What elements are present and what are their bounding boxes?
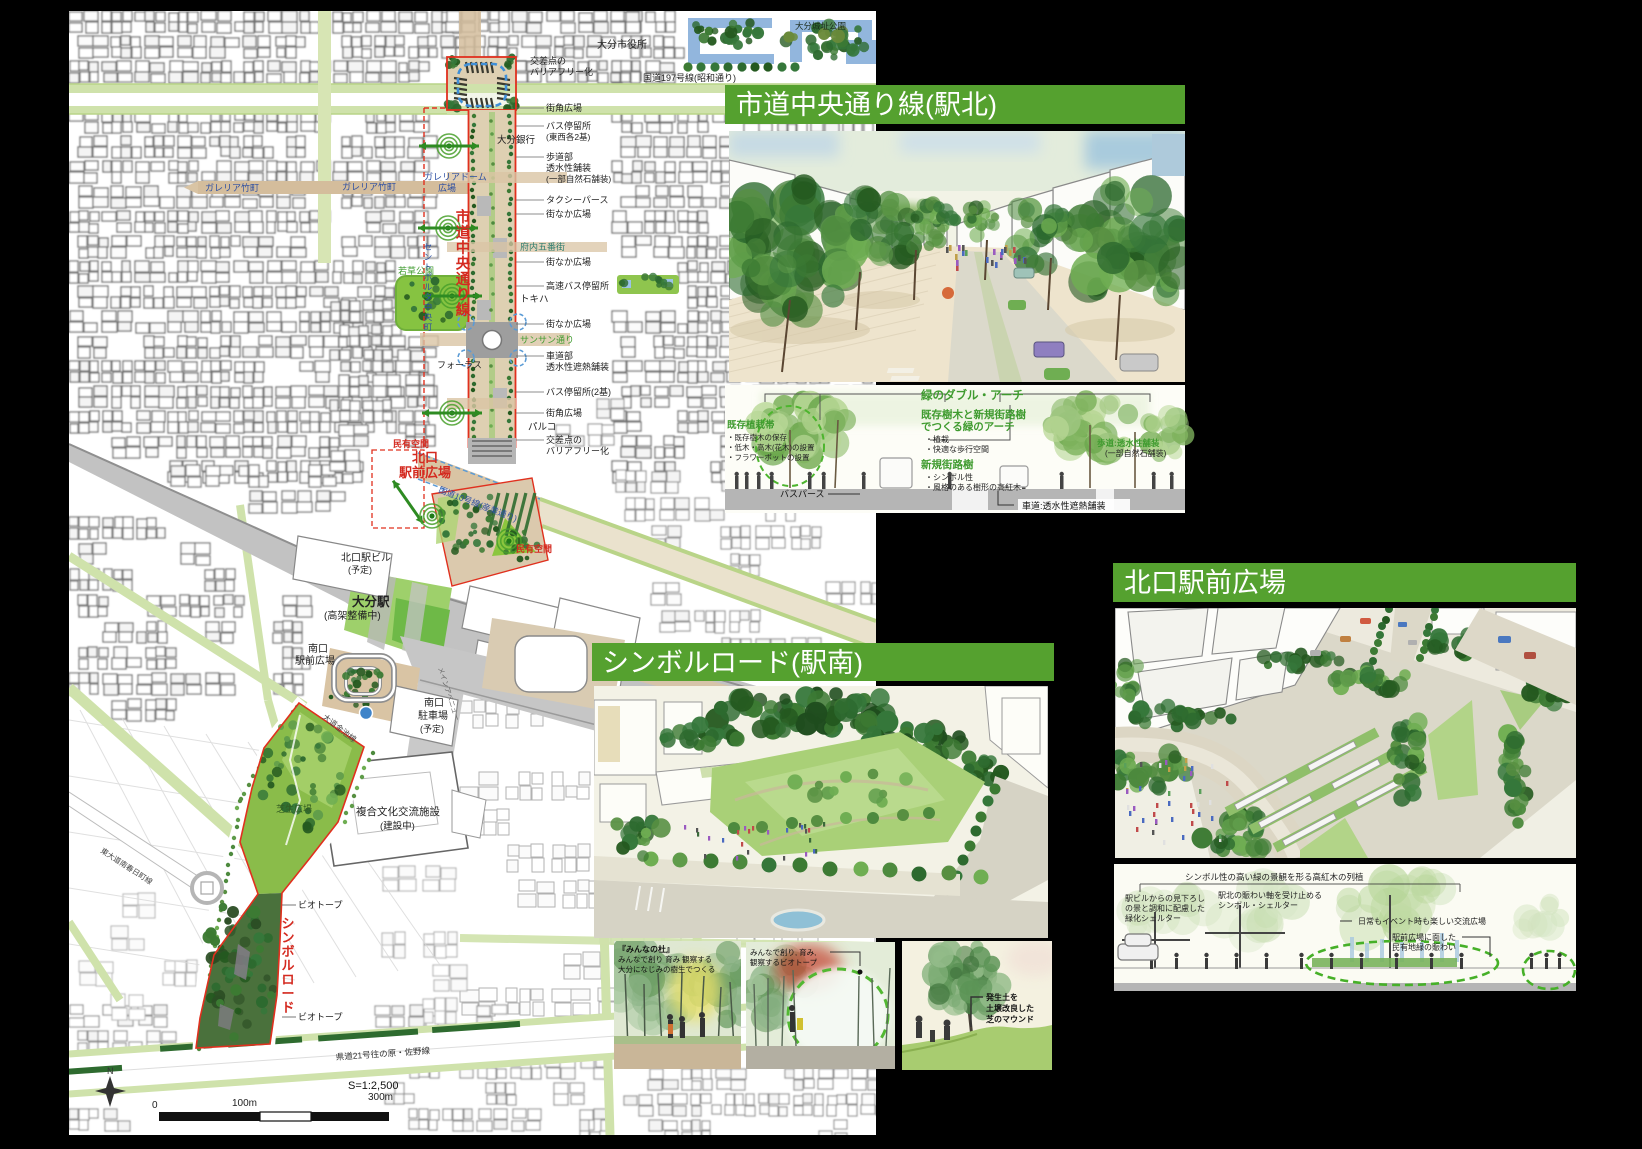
svg-text:ド: ド: [281, 1000, 294, 1015]
svg-text:バス停留所: バス停留所: [546, 120, 591, 131]
svg-text:大分城址公園: 大分城址公園: [795, 21, 846, 31]
svg-text:セ: セ: [424, 242, 433, 252]
svg-text:芝のマウンド: 芝のマウンド: [986, 1014, 1034, 1024]
svg-text:0: 0: [152, 1100, 158, 1111]
svg-text:民有空間: 民有空間: [516, 543, 552, 554]
svg-text:交差点の: 交差点の: [546, 434, 582, 445]
svg-text:ガレリア竹町: ガレリア竹町: [205, 182, 259, 193]
svg-text:S=1:2,500: S=1:2,500: [348, 1080, 398, 1092]
svg-text:府内五番街: 府内五番街: [520, 241, 565, 252]
svg-text:みんなで創り, 育み,: みんなで創り, 育み,: [750, 947, 816, 957]
svg-text:発生土を: 発生土を: [985, 992, 1018, 1002]
svg-text:緑のダブル・アーチ: 緑のダブル・アーチ: [921, 388, 1024, 402]
svg-text:タクシーパース: タクシーパース: [546, 195, 608, 205]
svg-text:高速バス停留所: 高速バス停留所: [546, 280, 609, 291]
svg-text:ポ: ポ: [424, 272, 433, 282]
svg-text:サンサン通り: サンサン通り: [520, 335, 574, 345]
svg-text:ト: ト: [424, 262, 433, 272]
svg-text:(建設中): (建設中): [380, 820, 415, 832]
svg-text:街角広場: 街角広場: [546, 407, 582, 418]
svg-text:大分になじみの樹生でつくる: 大分になじみの樹生でつくる: [618, 964, 715, 974]
svg-text:民有空間: 民有空間: [393, 438, 429, 449]
svg-text:広場: 広場: [438, 182, 456, 193]
svg-text:北口駅ビル: 北口駅ビル: [341, 552, 391, 564]
svg-text:駅ビルからの見下ろし: 駅ビルからの見下ろし: [1125, 894, 1205, 903]
svg-text:フォーラス: フォーラス: [437, 360, 482, 370]
svg-text:シンボルロード(駅南): シンボルロード(駅南): [602, 648, 863, 678]
svg-text:歩道部: 歩道部: [546, 151, 573, 162]
svg-text:大分駅: 大分駅: [352, 594, 390, 609]
svg-text:『みんなの杜』: 『みんなの杜』: [618, 944, 674, 954]
svg-text:バリアフリー化: バリアフリー化: [530, 66, 593, 77]
svg-text:300m: 300m: [368, 1092, 393, 1103]
svg-text:・植栽: ・植栽: [925, 434, 949, 444]
svg-text:・低木・高木(花木)の設置: ・低木・高木(花木)の設置: [727, 442, 815, 452]
svg-text:バスパース: バスパース: [780, 489, 825, 499]
svg-text:歩道:透水性舗装: 歩道:透水性舗装: [1097, 438, 1160, 448]
svg-text:バス停留所(2基): バス停留所(2基): [546, 386, 611, 397]
svg-text:既存植栽帯: 既存植栽帯: [727, 419, 775, 431]
svg-text:民有地緑の賑わい: 民有地緑の賑わい: [1392, 942, 1456, 952]
svg-text:パルコ: パルコ: [528, 422, 556, 433]
svg-text:観察するビオトープ: 観察するビオトープ: [750, 957, 818, 967]
svg-text:ガレリアドーム: ガレリアドーム: [424, 172, 487, 182]
svg-text:の景と調和に配慮した: の景と調和に配慮した: [1125, 903, 1205, 913]
svg-text:みんなで創り 育み 観察する: みんなで創り 育み 観察する: [618, 954, 712, 964]
svg-text:町: 町: [424, 322, 433, 332]
svg-text:ン: ン: [424, 252, 433, 262]
svg-text:ン: ン: [281, 930, 294, 945]
svg-text:日常もイベント時も楽しい交流広場: 日常もイベント時も楽しい交流広場: [1358, 916, 1486, 926]
svg-text:ビオトープ: ビオトープ: [298, 900, 342, 910]
svg-text:車道部: 車道部: [546, 350, 573, 361]
svg-text:ガレリア竹町: ガレリア竹町: [342, 181, 396, 192]
svg-text:南口: 南口: [424, 696, 444, 709]
svg-text:市: 市: [456, 208, 471, 226]
svg-text:大分市役所: 大分市役所: [597, 38, 647, 51]
svg-text:街角広場: 街角広場: [546, 102, 582, 113]
svg-text:・風格のある樹形の高紅木: ・風格のある樹形の高紅木: [925, 482, 1021, 492]
svg-text:シ: シ: [281, 916, 294, 931]
svg-text:駅前広場に面した: 駅前広場に面した: [1392, 932, 1456, 942]
svg-text:中: 中: [424, 302, 433, 312]
svg-text:タ: タ: [424, 292, 433, 302]
svg-text:透水性遮熱舗装: 透水性遮熱舗装: [546, 361, 609, 372]
svg-text:街なか広場: 街なか広場: [546, 208, 591, 219]
svg-text:トキハ: トキハ: [520, 294, 549, 305]
svg-text:交差点の: 交差点の: [530, 55, 566, 66]
svg-text:駅北の賑わい軸を受け止める: 駅北の賑わい軸を受け止める: [1218, 890, 1322, 900]
svg-text:国道197号線(昭和通り): 国道197号線(昭和通り): [643, 72, 736, 83]
svg-text:・フラワーポットの設置: ・フラワーポットの設置: [727, 452, 810, 462]
svg-text:シンボル・シェルター: シンボル・シェルター: [1218, 901, 1298, 910]
svg-text:(東西各2基): (東西各2基): [546, 132, 591, 142]
svg-text:新規街路樹: 新規街路樹: [921, 458, 974, 471]
svg-text:街なか広場: 街なか広場: [546, 318, 591, 329]
svg-text:・既存樹木の保存: ・既存樹木の保存: [727, 432, 787, 442]
svg-text:既存樹木と新規街路樹: 既存樹木と新規街路樹: [921, 408, 1026, 421]
svg-text:駅前広場: 駅前広場: [295, 654, 335, 667]
svg-text:ル: ル: [424, 282, 433, 292]
svg-text:北口: 北口: [412, 450, 438, 465]
svg-text:(予定): (予定): [348, 564, 372, 575]
svg-text:バリアフリー化: バリアフリー化: [546, 445, 609, 456]
svg-text:芝生広場: 芝生広場: [276, 803, 312, 814]
svg-text:中: 中: [456, 239, 471, 257]
svg-text:大分銀行: 大分銀行: [497, 134, 536, 146]
svg-text:駅前広場: 駅前広場: [398, 465, 451, 480]
svg-text:道: 道: [456, 224, 471, 242]
svg-text:でつくる緑のアーチ: でつくる緑のアーチ: [921, 420, 1015, 433]
svg-text:緑化シェルター: 緑化シェルター: [1125, 913, 1181, 923]
svg-text:ル: ル: [281, 958, 294, 973]
svg-text:100m: 100m: [232, 1098, 257, 1109]
svg-text:央: 央: [424, 312, 433, 322]
svg-text:N: N: [107, 1066, 114, 1076]
svg-text:土壌改良した: 土壌改良した: [986, 1003, 1034, 1013]
svg-text:線: 線: [456, 301, 471, 319]
svg-text:市道中央通り線(駅北): 市道中央通り線(駅北): [736, 90, 997, 120]
svg-text:駐車場: 駐車場: [418, 709, 448, 722]
svg-text:央: 央: [456, 255, 471, 273]
svg-text:・快適な歩行空間: ・快適な歩行空間: [925, 444, 989, 454]
svg-text:ロ: ロ: [281, 972, 294, 987]
svg-text:南口: 南口: [308, 642, 328, 655]
svg-text:(一部自然石舗装): (一部自然石舗装): [1105, 448, 1167, 458]
svg-text:ビオトープ: ビオトープ: [298, 1012, 342, 1022]
svg-text:シンボル性の高い緑の景観を形る高紅木の列植: シンボル性の高い緑の景観を形る高紅木の列植: [1185, 872, 1364, 882]
svg-text:(予定): (予定): [420, 723, 444, 734]
svg-text:通: 通: [456, 271, 471, 288]
svg-text:ー: ー: [281, 986, 294, 1001]
svg-text:北口駅前広場: 北口駅前広場: [1124, 568, 1286, 598]
svg-text:複合文化交流施設: 複合文化交流施設: [356, 805, 440, 818]
svg-text:透水性舗装: 透水性舗装: [546, 162, 591, 173]
svg-text:車道:透水性遮熱舗装: 車道:透水性遮熱舗装: [1022, 500, 1106, 511]
svg-text:ボ: ボ: [281, 944, 294, 959]
svg-text:り: り: [456, 287, 471, 304]
svg-text:・シンボル性: ・シンボル性: [925, 472, 973, 482]
svg-text:(一部自然石舗装): (一部自然石舗装): [546, 174, 611, 184]
svg-text:街なか広場: 街なか広場: [546, 256, 591, 267]
svg-text:(高架整備中): (高架整備中): [324, 609, 381, 622]
